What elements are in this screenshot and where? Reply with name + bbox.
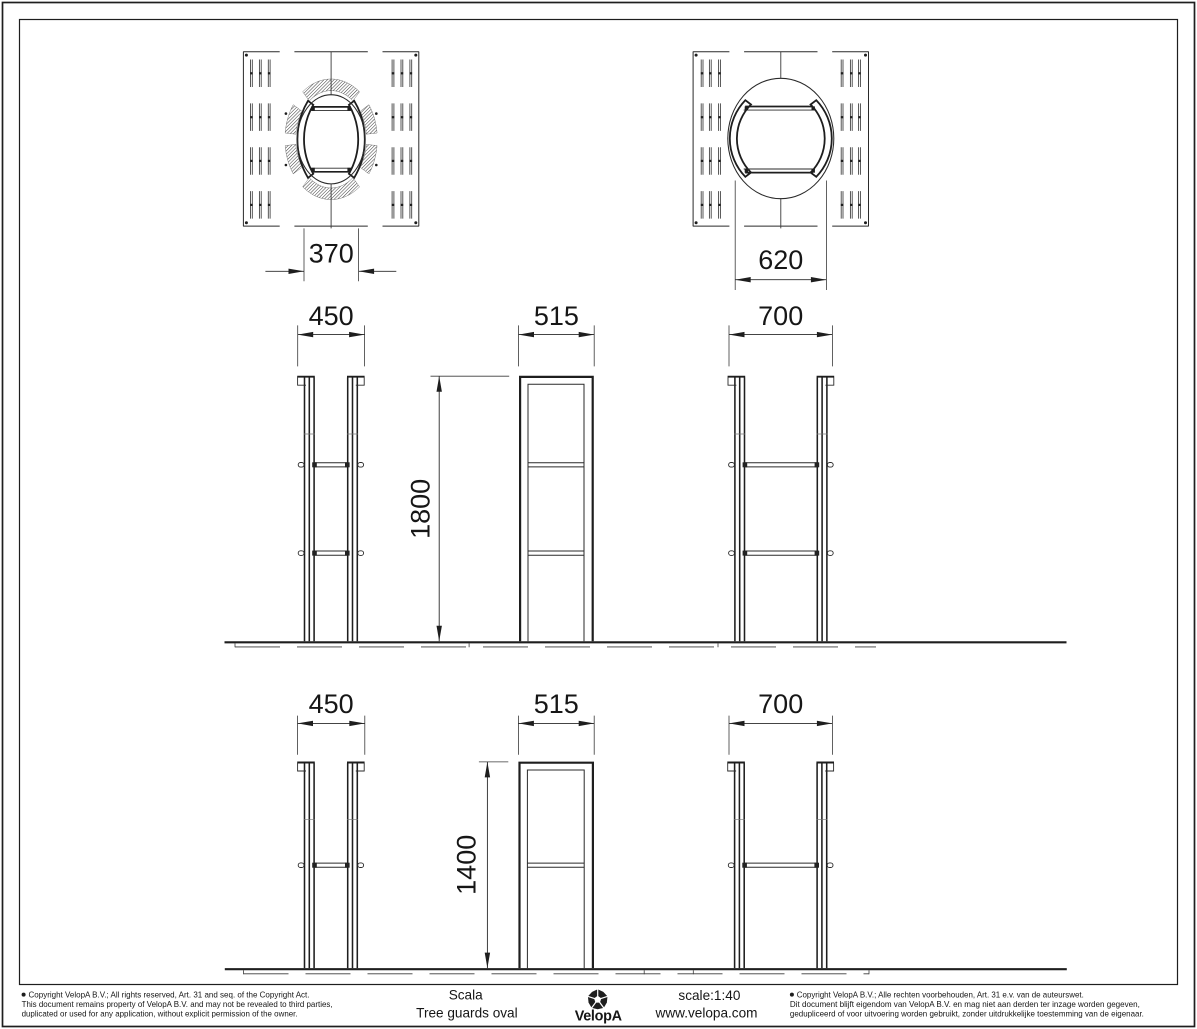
svg-text:scale:1:40: scale:1:40 [678,988,740,1003]
svg-text:Copyright VelopA B.V.; All rig: Copyright VelopA B.V.; All rights reserv… [29,990,310,1000]
svg-text:Dit document blijft eigendom v: Dit document blijft eigendom van VelopA … [790,999,1140,1009]
svg-text:VelopA: VelopA [575,1009,623,1025]
svg-text:700: 700 [758,301,803,331]
svg-text:1400: 1400 [451,835,481,895]
svg-text:515: 515 [534,301,579,331]
svg-text:Copyright VelopA B.V.; Alle re: Copyright VelopA B.V.; Alle rechten voor… [797,990,1084,1000]
svg-text:www.velopa.com: www.velopa.com [655,1005,758,1020]
svg-text:Tree guards oval: Tree guards oval [416,1005,518,1020]
svg-text:This document remains property: This document remains property of VelopA… [22,999,333,1009]
svg-text:515: 515 [534,689,579,719]
svg-text:Scala: Scala [449,988,483,1003]
svg-text:gedupliceerd of voor uitvoerin: gedupliceerd of voor uitvoering worden g… [790,1009,1144,1019]
svg-text:370: 370 [309,238,354,268]
svg-text:450: 450 [309,689,354,719]
svg-text:duplicated or used for any app: duplicated or used for any application, … [22,1009,298,1019]
svg-text:620: 620 [758,245,803,275]
svg-text:1800: 1800 [406,479,436,539]
svg-text:700: 700 [758,689,803,719]
svg-text:450: 450 [309,301,354,331]
